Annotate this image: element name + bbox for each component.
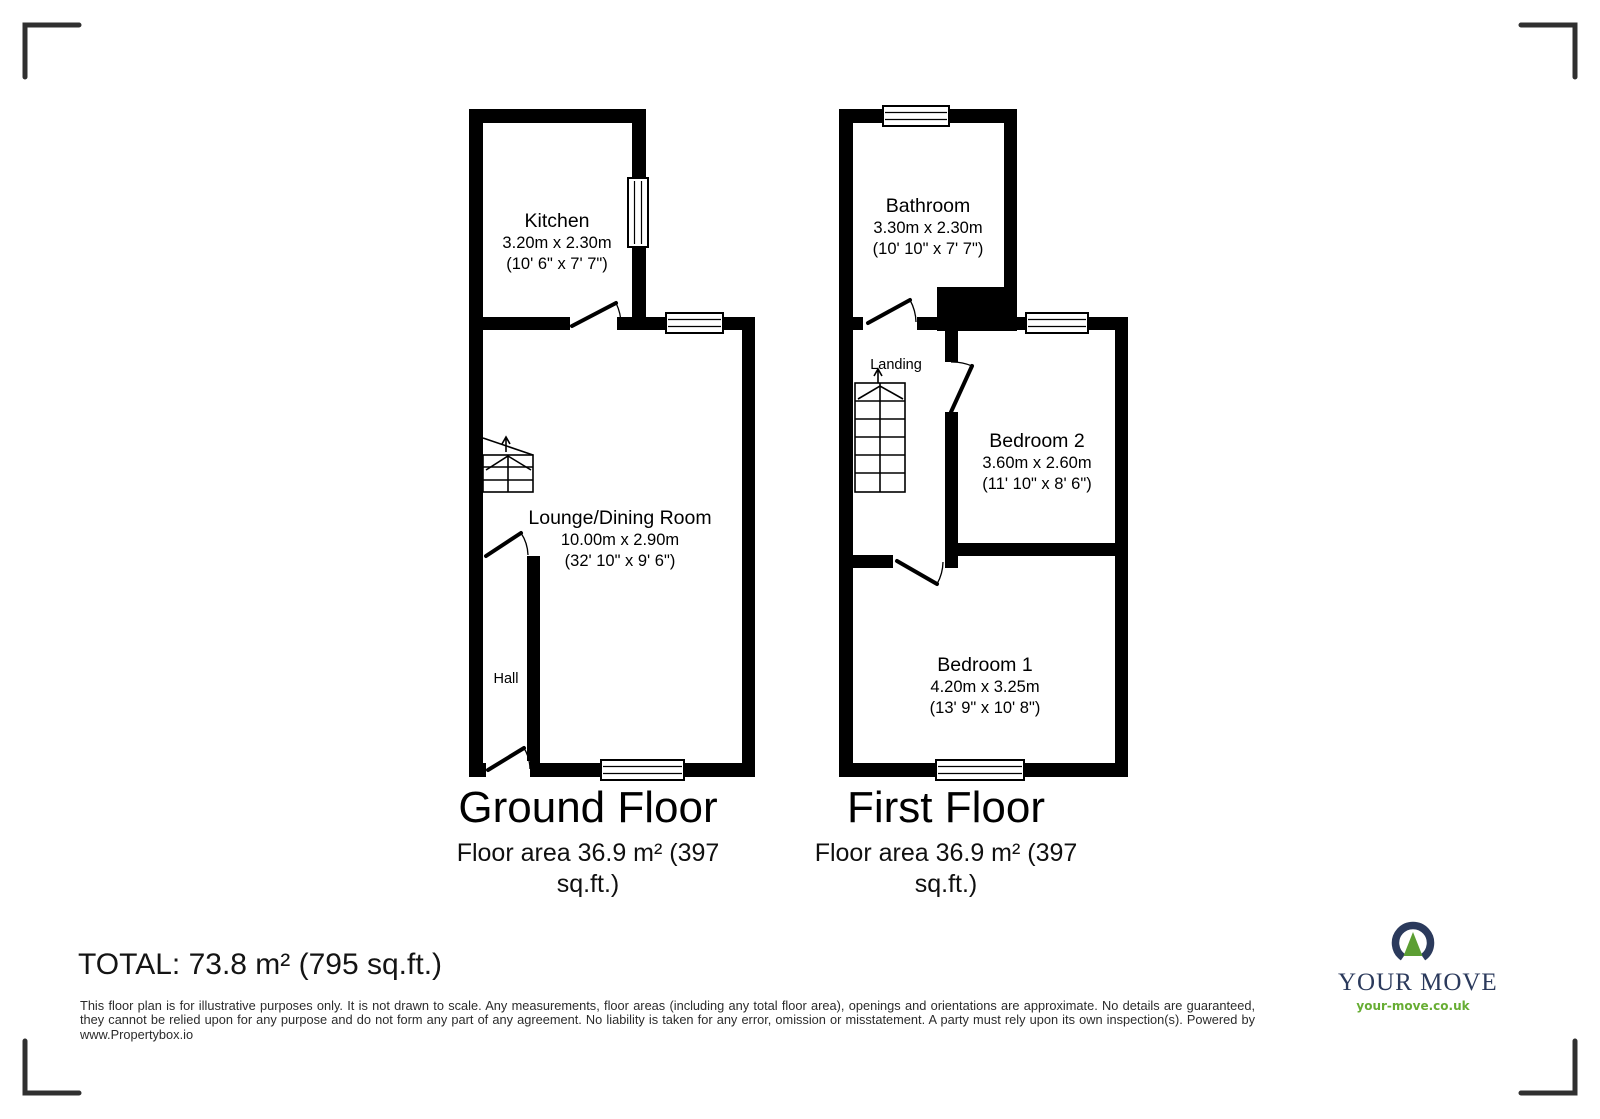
total-area-text: TOTAL: 73.8 m² (795 sq.ft.) — [78, 948, 442, 982]
floor-area-line1: Floor area 36.9 m² (397 — [815, 838, 1078, 869]
room-dims-imperial: (13' 9" x 10' 8") — [930, 698, 1041, 719]
ground-floor-area: Floor area 36.9 m² (397 sq.ft.) — [457, 838, 720, 900]
room-dims-metric: 10.00m x 2.90m — [528, 530, 711, 551]
logo-website: your-move.co.uk — [1338, 999, 1488, 1013]
room-dims-imperial: (10' 10" x 7' 7") — [873, 239, 984, 260]
staircase-first — [855, 369, 905, 492]
corner-mark-bottom-left — [25, 1041, 79, 1093]
hall-door-swing — [486, 533, 528, 556]
floor-area-line2: sq.ft.) — [457, 869, 720, 900]
floor-area-line1: Floor area 36.9 m² (397 — [457, 838, 720, 869]
first-floor-area: Floor area 36.9 m² (397 sq.ft.) — [815, 838, 1078, 900]
staircase-ground — [483, 437, 533, 492]
bedroom2-window — [1026, 313, 1088, 333]
your-move-logo: YOUR MOVE your-move.co.uk — [1338, 921, 1488, 1013]
room-dims-metric: 3.20m x 2.30m — [502, 233, 611, 254]
logo-triangle — [1404, 932, 1423, 956]
bedroom1-window — [936, 760, 1024, 780]
bathroom-window — [883, 106, 949, 126]
room-name: Bathroom — [873, 194, 984, 218]
corner-mark-top-left — [25, 25, 79, 77]
lounge-top-window — [666, 313, 723, 333]
room-name: Landing — [870, 357, 922, 373]
room-name: Hall — [494, 671, 519, 687]
room-name: Bedroom 2 — [982, 429, 1091, 453]
room-dims-imperial: (32' 10" x 9' 6") — [528, 551, 711, 572]
room-name: Kitchen — [502, 209, 611, 233]
room-name: Lounge/Dining Room — [528, 506, 711, 530]
kitchen-window — [628, 178, 648, 247]
corner-mark-top-right — [1521, 25, 1575, 77]
corner-mark-bottom-right — [1521, 1041, 1575, 1093]
your-move-logo-icon — [1388, 921, 1438, 967]
ground-floor-title: Ground Floor — [458, 785, 717, 831]
lounge-bottom-window — [601, 760, 684, 780]
bedroom2-door-swing — [951, 362, 972, 412]
room-name: Bedroom 1 — [930, 653, 1041, 677]
room-label-bathroom: Bathroom 3.30m x 2.30m (10' 10" x 7' 7") — [873, 194, 984, 260]
disclaimer-text: This floor plan is for illustrative purp… — [80, 999, 1255, 1042]
room-label-hall: Hall — [494, 671, 519, 687]
room-label-lounge: Lounge/Dining Room 10.00m x 2.90m (32' 1… — [528, 506, 711, 572]
room-label-landing: Landing — [870, 357, 922, 373]
first-floor-title: First Floor — [847, 785, 1045, 831]
room-label-bedroom2: Bedroom 2 3.60m x 2.60m (11' 10" x 8' 6"… — [982, 429, 1091, 495]
room-dims-metric: 3.30m x 2.30m — [873, 218, 984, 239]
room-dims-metric: 3.60m x 2.60m — [982, 453, 1091, 474]
floor-area-line2: sq.ft.) — [815, 869, 1078, 900]
room-label-kitchen: Kitchen 3.20m x 2.30m (10' 6" x 7' 7") — [502, 209, 611, 275]
front-door-opening — [486, 761, 530, 779]
room-dims-metric: 4.20m x 3.25m — [930, 677, 1041, 698]
room-dims-imperial: (10' 6" x 7' 7") — [502, 254, 611, 275]
room-label-bedroom1: Bedroom 1 4.20m x 3.25m (13' 9" x 10' 8"… — [930, 653, 1041, 719]
logo-wordmark: YOUR MOVE — [1338, 969, 1488, 996]
room-dims-imperial: (11' 10" x 8' 6") — [982, 474, 1091, 495]
